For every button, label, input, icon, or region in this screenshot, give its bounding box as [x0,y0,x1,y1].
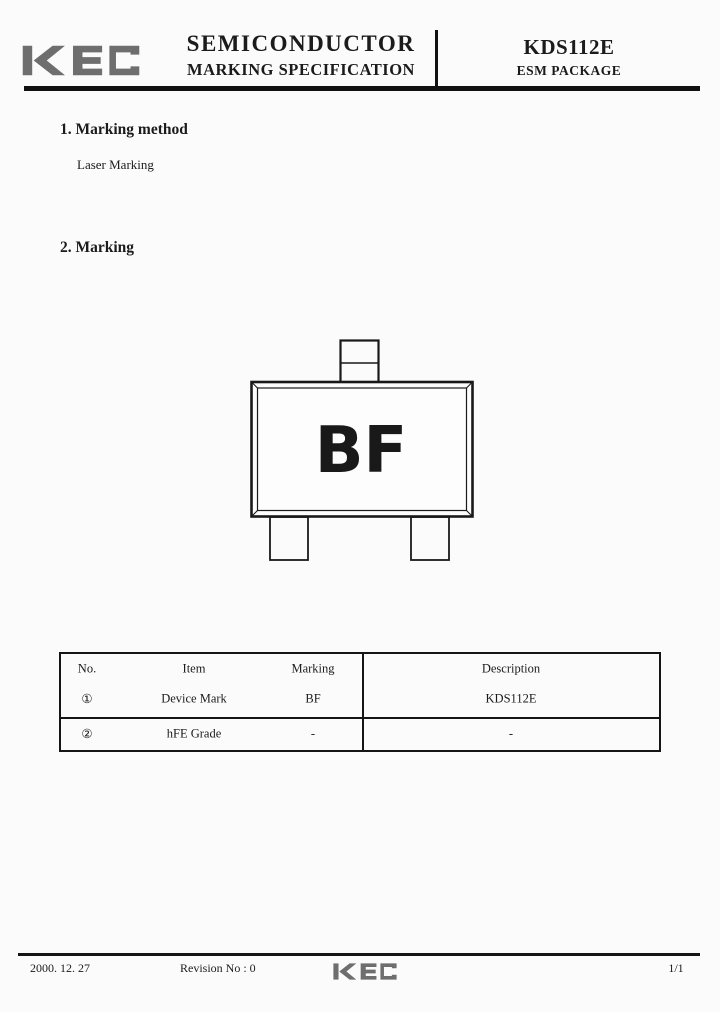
package-right-lead [411,517,449,560]
table-vertical-divider [362,654,364,750]
row1-marking: BF [305,692,320,707]
package-left-lead [270,517,308,560]
row2-description: - [509,727,513,742]
section-2-heading: 2. Marking [60,239,134,257]
row1-description: KDS112E [486,692,537,707]
marking-spec-table: No. Item Marking Description ① Device Ma… [59,652,661,752]
package-top-lead [341,341,379,383]
header-title: SEMICONDUCTOR [160,31,442,57]
kec-logo-footer [333,963,397,980]
col-header-no: No. [78,662,96,677]
device-marking-text: BF [315,414,408,488]
row1-item: Device Mark [161,692,227,707]
footer-page-number: 1/1 [660,961,692,976]
row2-item: hFE Grade [167,727,222,742]
package-name: ESM PACKAGE [438,63,700,79]
table-horizontal-divider [61,717,659,719]
col-header-marking: Marking [291,662,334,677]
footer-revision: Revision No : 0 [180,961,256,976]
footer-date: 2000. 12. 27 [30,961,90,976]
footer-rule [18,953,700,956]
part-number: KDS112E [438,36,700,59]
document-page: SEMICONDUCTOR MARKING SPECIFICATION KDS1… [0,0,720,1012]
header-title-block: SEMICONDUCTOR MARKING SPECIFICATION [160,31,442,80]
col-header-item: Item [183,662,206,677]
row2-marking: - [311,727,315,742]
section-1-heading: 1. Marking method [60,121,188,139]
header-subtitle: MARKING SPECIFICATION [160,60,442,80]
row2-no: ② [81,726,92,742]
col-header-description: Description [482,662,540,677]
kec-logo [22,45,140,76]
package-diagram: BF [235,330,485,570]
section-1-text: Laser Marking [77,157,154,173]
header-rule [24,86,700,91]
row1-no: ① [81,691,92,707]
header-part-block: KDS112E ESM PACKAGE [438,36,700,79]
